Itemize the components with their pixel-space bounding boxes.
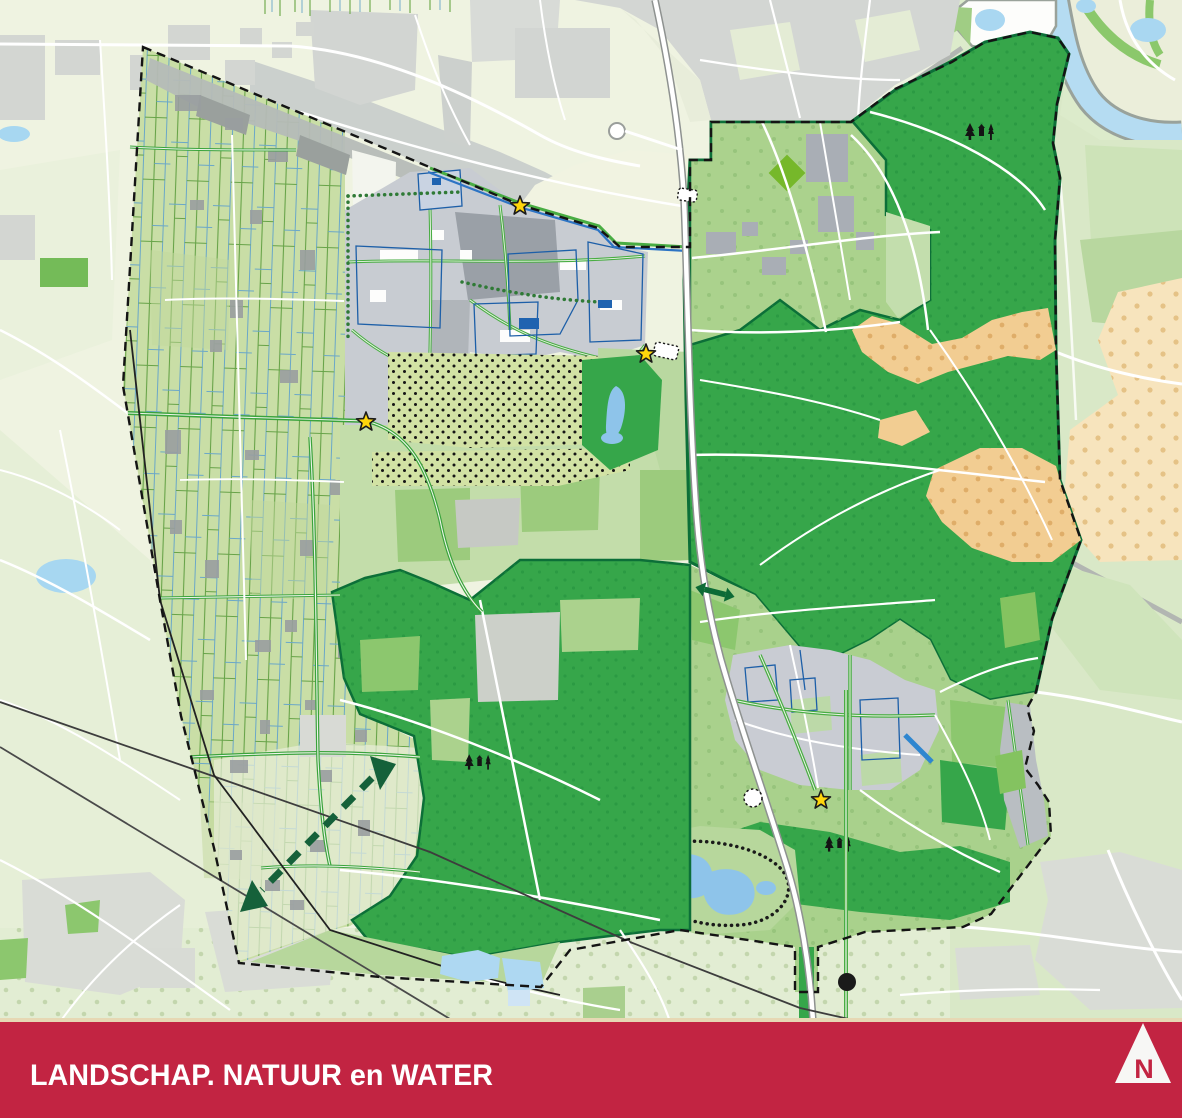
svg-text:N: N — [1134, 1054, 1154, 1084]
svg-text:LANDSCHAP. NATUUR en WATER: LANDSCHAP. NATUUR en WATER — [30, 1059, 493, 1092]
